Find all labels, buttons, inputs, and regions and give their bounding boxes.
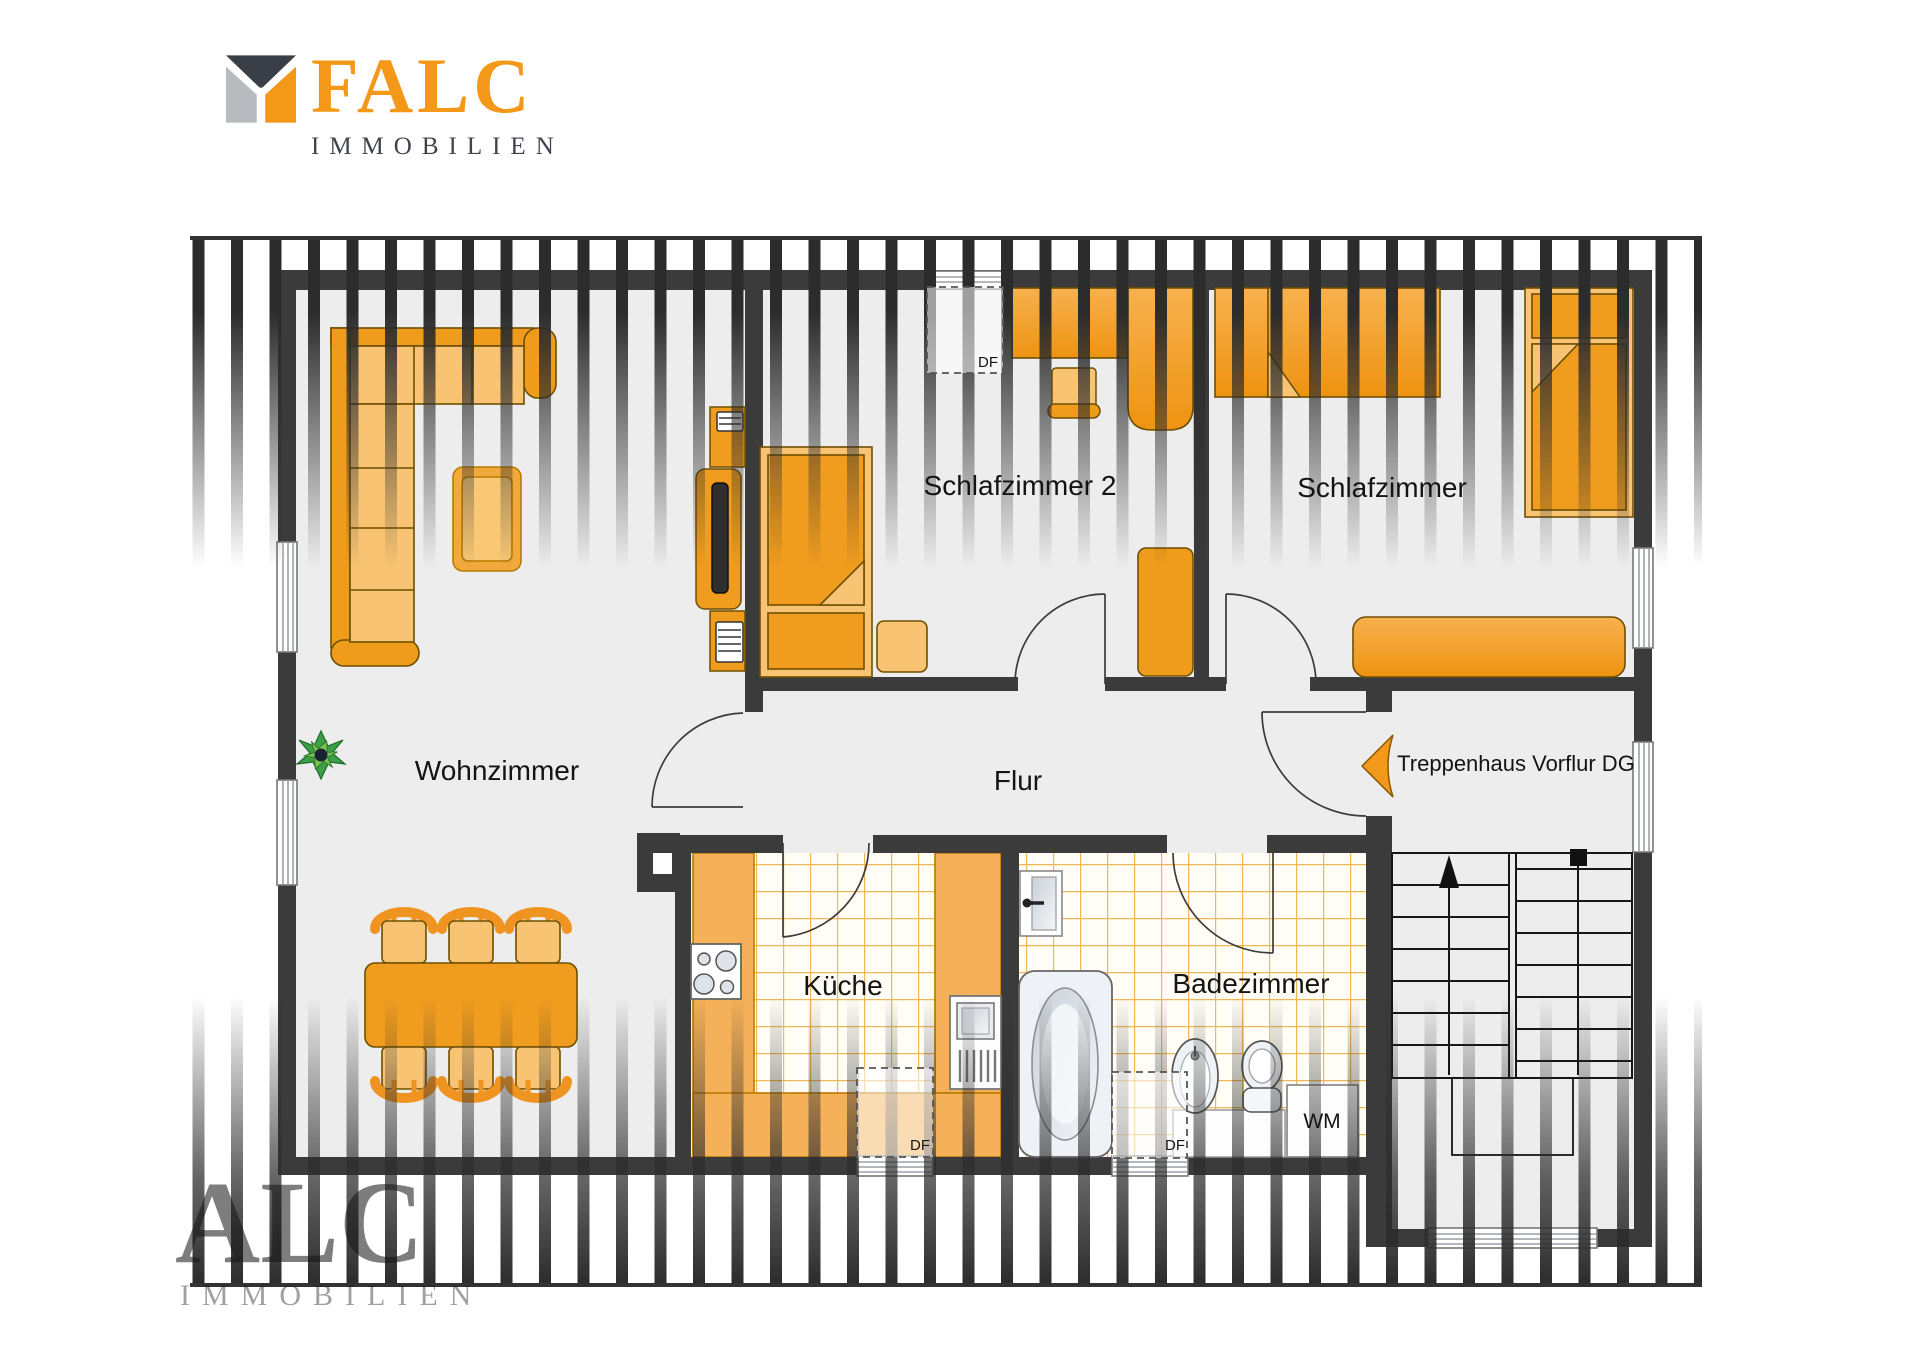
label-df-kueche: DF	[910, 1137, 930, 1154]
svg-text:ALC: ALC	[175, 1157, 424, 1288]
label-wohnzimmer: Wohnzimmer	[415, 755, 579, 786]
radiator	[1020, 871, 1062, 936]
label-df-schlafzimmer2: DF	[978, 354, 998, 371]
label-treppenhaus: Treppenhaus Vorflur DG	[1397, 751, 1635, 776]
label-flur: Flur	[994, 765, 1042, 796]
floorplan-drawing: ALC IMMOBILIEN Wohnzimmer Schlafzimmer 2…	[0, 0, 1920, 1357]
label-kueche: Küche	[803, 970, 882, 1001]
floorplan-page: FALC IMMOBILIEN	[0, 0, 1920, 1357]
wardrobe-schlafzimmer2	[1138, 548, 1193, 676]
label-df-badezimmer: DF	[1165, 1137, 1185, 1154]
window-right-2	[1633, 742, 1653, 852]
window-left-2	[277, 780, 297, 885]
sideboard-schlafzimmer	[1353, 617, 1625, 677]
eave-line-top	[190, 236, 1702, 240]
label-schlafzimmer: Schlafzimmer	[1297, 472, 1467, 503]
svg-text:IMMOBILIEN: IMMOBILIEN	[180, 1279, 483, 1312]
label-badezimmer: Badezimmer	[1172, 968, 1329, 999]
chimney-shaft	[652, 852, 673, 875]
stove	[691, 944, 741, 999]
label-schlafzimmer2: Schlafzimmer 2	[924, 470, 1117, 501]
label-wm: WM	[1303, 1110, 1340, 1133]
nightstand	[877, 621, 927, 672]
